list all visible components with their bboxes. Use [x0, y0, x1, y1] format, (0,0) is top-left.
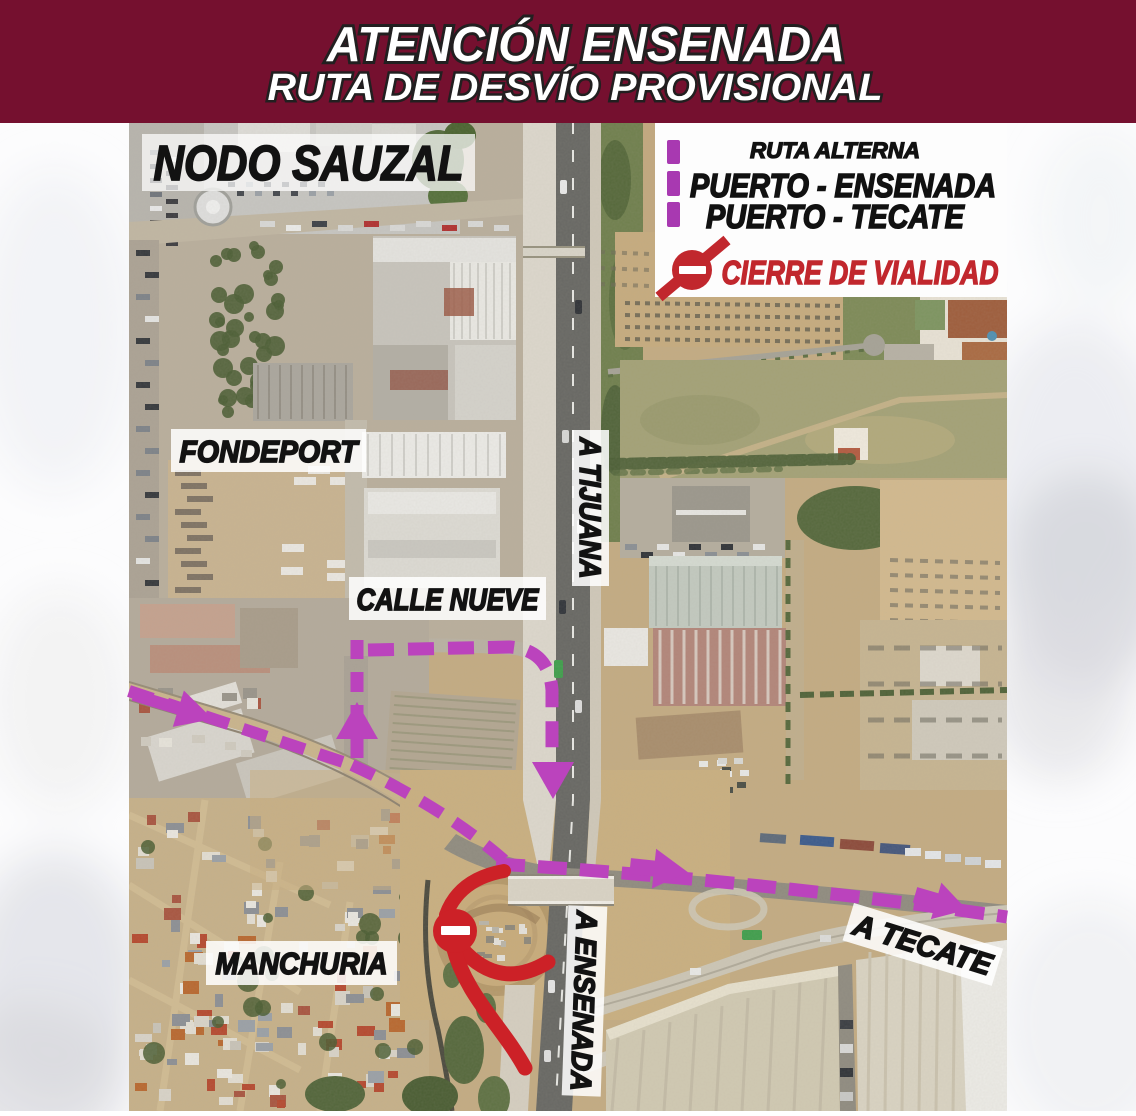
svg-text:FONDEPORT: FONDEPORT — [180, 434, 361, 469]
svg-text:A TIJUANA: A TIJUANA — [573, 437, 606, 579]
svg-text:MANCHURIA: MANCHURIA — [216, 946, 388, 981]
svg-text:CIERRE DE VIALIDAD: CIERRE DE VIALIDAD — [722, 254, 999, 291]
svg-text:CALLE NUEVE: CALLE NUEVE — [357, 582, 540, 617]
svg-text:A ENSENADA: A ENSENADA — [564, 909, 602, 1091]
svg-text:ATENCIÓN ENSENADA: ATENCIÓN ENSENADA — [326, 18, 845, 72]
svg-text:PUERTO - TECATE: PUERTO - TECATE — [706, 198, 965, 235]
svg-text:RUTA DE DESVÍO PROVISIONAL: RUTA DE DESVÍO PROVISIONAL — [268, 65, 883, 109]
svg-text:NODO SAUZAL: NODO SAUZAL — [154, 137, 464, 191]
svg-text:RUTA ALTERNA: RUTA ALTERNA — [750, 138, 920, 163]
